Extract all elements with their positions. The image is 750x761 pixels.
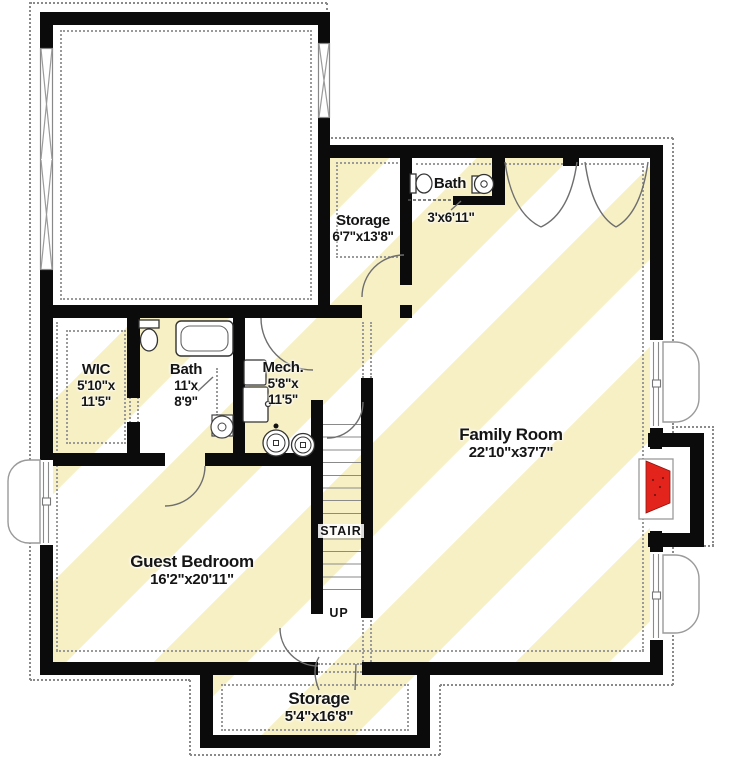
opening-dashed [370,322,372,378]
wall-segment [318,145,663,158]
room-dims: 6'7"x13'8" [303,229,423,245]
mask [40,675,200,748]
opening-dashed [362,322,364,378]
storage-opening-dashed [318,671,362,673]
wall-segment [563,158,579,166]
room-name: Mech. [233,359,333,376]
opening-dashed [370,616,372,662]
wall-segment [417,675,430,748]
outline [712,426,714,546]
wall-segment [40,453,165,466]
room-dims: 5'10"x 11'5" [46,378,146,409]
outline [672,138,674,685]
outline [190,754,440,756]
upper-floor-line [416,163,643,165]
room-label-family: Family Room 22'10"x37'7" [411,425,611,461]
stair-treads [323,424,361,602]
room-dims: 16'2"x20'11" [92,571,292,588]
room-dims: 22'10"x37'7" [411,444,611,461]
room-label-storage-top: Storage 6'7"x13'8" [303,212,423,245]
wall-segment [361,378,373,618]
wall-segment [40,12,330,25]
up-label: UP [309,604,369,622]
outline [439,685,441,755]
outline [30,679,190,681]
fireplace-wall [690,433,704,547]
room-dims: 3'x6'11" [411,210,491,226]
wall-segment [492,158,505,200]
wall-segment [313,305,362,318]
window [318,43,330,118]
outline [189,680,191,755]
room-label-mech: Mech. 5'8"x 11'5" [233,359,333,407]
room-dims: 5'8"x 11'5" [233,376,333,407]
room-dims-bath-top: 3'x6'11" [411,210,491,226]
room-name: WIC [46,361,146,378]
room-name: Family Room [411,425,611,444]
fireplace-interior [662,447,690,533]
wall-segment [205,453,311,466]
stair-label: STAIR [301,522,381,540]
room-label-bath-top: Bath [410,175,490,192]
floor-plan: Storage 6'7"x13'8" Bath 3'x6'11" WIC 5'1… [0,0,750,761]
room-dims: 5'4"x16'8" [239,708,399,725]
opening-dashed [362,616,364,662]
fireplace-gap [650,449,663,531]
room-dims: 11'x 8'9" [136,378,236,409]
outline [327,137,673,139]
room-name: Bath [136,361,236,378]
window [650,340,663,428]
wall-segment [200,735,430,748]
room-name: Storage [239,689,399,708]
wall-segment [400,305,412,318]
outline [672,426,714,428]
room-name: Bath [410,175,490,192]
fireplace-wall [648,533,704,547]
wall-segment [40,662,318,675]
wall-segment [362,662,663,675]
room-label-guest: Guest Bedroom 16'2"x20'11" [92,552,292,588]
outline [29,2,31,680]
outline [440,684,673,686]
upper-floor-line [642,163,644,651]
room-label-storage-bottom: Storage 5'4"x16'8" [239,689,399,725]
stair-text: STAIR [318,524,364,538]
wall-segment [127,422,140,453]
window [40,48,53,270]
window [40,460,53,545]
room-label-bath-main: Bath 11'x 8'9" [136,361,236,409]
storage-opening-dashed [318,663,362,665]
garage-inner-dashed [60,30,312,300]
wall-segment [40,305,262,318]
up-text: UP [327,606,350,620]
wall-segment [311,400,323,614]
room-name: Guest Bedroom [92,552,292,571]
room-label-wic: WIC 5'10"x 11'5" [46,361,146,409]
upper-floor-line [56,650,644,652]
outline [30,2,327,4]
room-name: Storage [303,212,423,229]
window [650,552,663,640]
